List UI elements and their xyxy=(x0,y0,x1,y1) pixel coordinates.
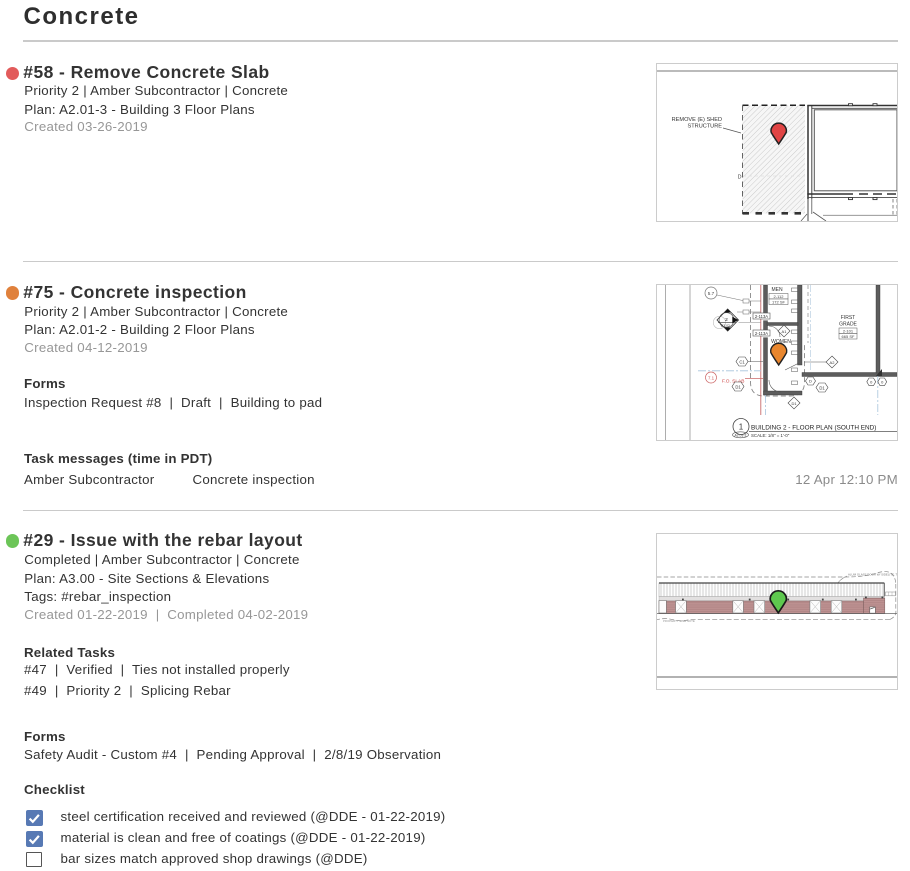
svg-text:7.1: 7.1 xyxy=(708,376,715,381)
svg-text:BUILDING 2 - FLOOR PLAN (SOUTH: BUILDING 2 - FLOOR PLAN (SOUTH END) xyxy=(751,425,876,432)
svg-text:172 SF: 172 SF xyxy=(772,299,785,304)
svg-text:ALUM GLASS DOOR W/ SIDELITE, T: ALUM GLASS DOOR W/ SIDELITE, TYP xyxy=(848,573,897,577)
svg-text:SCALE: 1/8" = 1'-0": SCALE: 1/8" = 1'-0" xyxy=(751,433,790,438)
svg-text:1: 1 xyxy=(739,423,744,432)
svg-text:A3-02: A3-02 xyxy=(721,324,730,328)
svg-text:A1: A1 xyxy=(782,329,788,334)
svg-text:2-101: 2-101 xyxy=(843,329,854,334)
svg-text:D1: D1 xyxy=(819,385,825,390)
svg-text:2-113A: 2-113A xyxy=(755,314,768,319)
svg-text:PROPERTY LINE NOTE: PROPERTY LINE NOTE xyxy=(663,619,695,623)
svg-text:MEN: MEN xyxy=(771,287,783,293)
svg-text:D: D xyxy=(738,175,742,181)
svg-text:5.7: 5.7 xyxy=(708,291,715,296)
svg-text:2-113A: 2-113A xyxy=(755,331,768,336)
svg-text:D1: D1 xyxy=(791,401,797,406)
svg-text:STRUCTURE: STRUCTURE xyxy=(688,124,723,130)
svg-text:A2: A2 xyxy=(830,360,836,365)
svg-text:A2.01-2: A2.01-2 xyxy=(735,433,747,437)
svg-text:665 SF: 665 SF xyxy=(842,334,855,339)
svg-text:D: D xyxy=(809,379,812,384)
svg-text:2: 2 xyxy=(725,317,728,323)
svg-text:C1: C1 xyxy=(739,359,745,364)
svg-text:FIRST: FIRST xyxy=(841,315,855,321)
svg-text:GRADE: GRADE xyxy=(839,322,857,328)
svg-text:REMOVE (E) SHED: REMOVE (E) SHED xyxy=(672,117,722,123)
svg-text:D1: D1 xyxy=(735,384,741,389)
svg-text:2-112: 2-112 xyxy=(774,294,785,299)
